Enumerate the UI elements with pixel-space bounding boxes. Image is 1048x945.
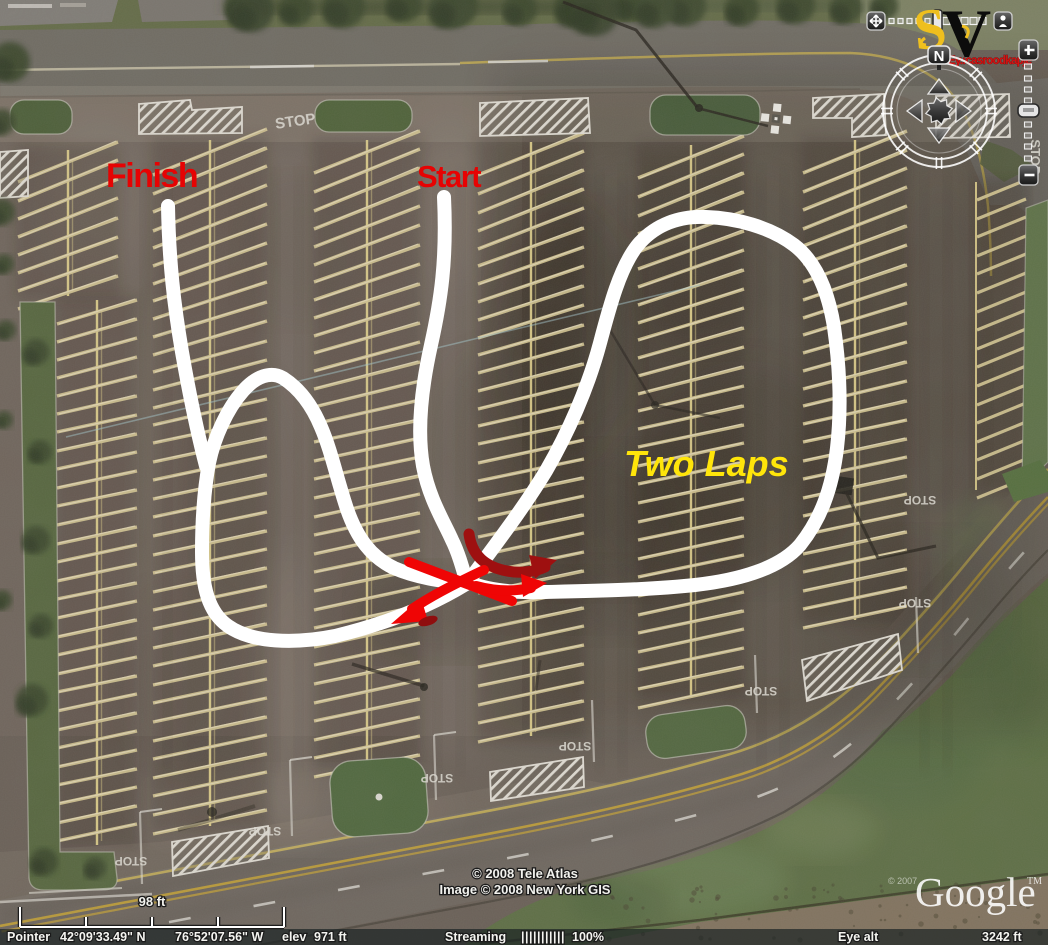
svg-text:100%: 100% [572,930,604,944]
svg-text:Image © 2008 New York GIS: Image © 2008 New York GIS [440,882,611,897]
svg-text:Streaming: Streaming [445,930,506,944]
svg-text:971 ft: 971 ft [314,930,347,944]
svg-text:TM: TM [1027,876,1042,887]
svg-text:Two Laps: Two Laps [624,443,789,484]
svg-text:98 ft: 98 ft [139,894,166,909]
svg-text:Start: Start [417,159,481,194]
svg-text:3242 ft: 3242 ft [982,930,1022,944]
svg-text:76°52'07.56" W: 76°52'07.56" W [175,930,263,944]
svg-text:Finish: Finish [106,157,197,195]
svg-text:42°09'33.49" N: 42°09'33.49" N [60,930,146,944]
svg-text:elev: elev [282,930,306,944]
svg-text:|||||||||||: ||||||||||| [521,930,565,944]
svg-text:© 2007: © 2007 [888,876,917,886]
svg-text:Pointer: Pointer [7,930,50,944]
svg-text:© 2008 Tele Atlas: © 2008 Tele Atlas [472,866,578,881]
svg-text:Eye alt: Eye alt [838,930,879,944]
svg-text:N: N [934,48,945,65]
svg-text:Google: Google [915,869,1036,915]
